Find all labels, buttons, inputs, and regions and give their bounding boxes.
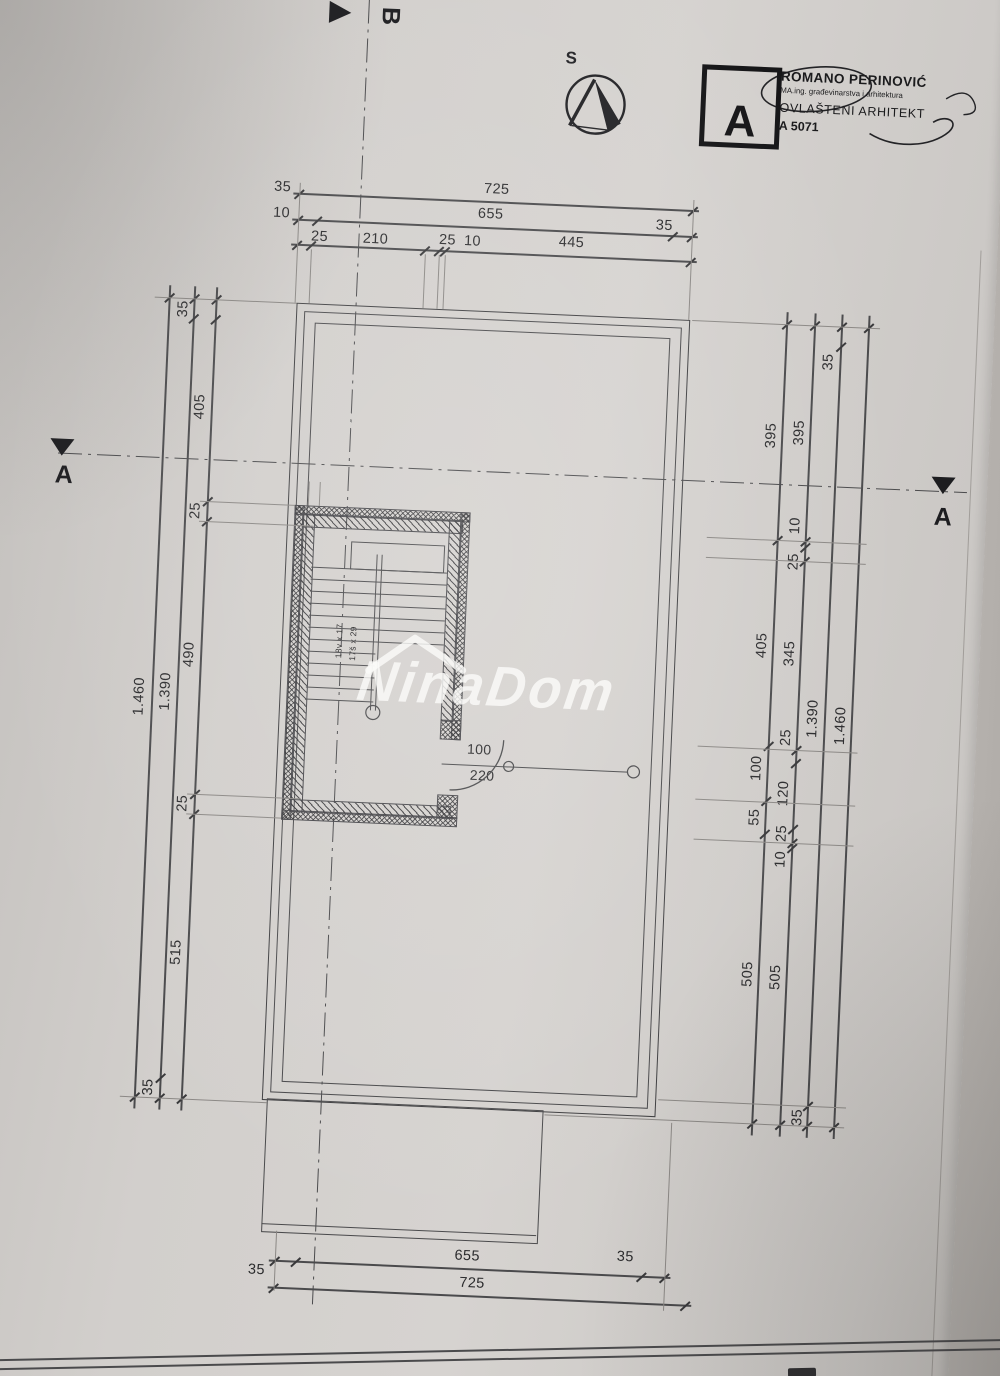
drawing-line [309,614,377,618]
dim-label: 515 [168,939,185,965]
drawing-line [377,617,445,621]
dim-label: 10 [787,517,804,535]
drawing-line [307,481,309,505]
dim-label: 55 [746,808,763,826]
dim-label: 1.460 [130,677,148,716]
dim-label: 10 [464,233,482,250]
drawing-line [442,763,628,772]
drawing-line [707,536,867,544]
drawing-line [186,813,281,818]
dim-label: 505 [739,961,756,987]
dim-label: 35 [140,1078,157,1096]
drawing-line [187,793,301,799]
dim-label: 395 [791,420,808,446]
dim-label: 10 [273,205,291,222]
dim-label: 35 [616,1249,634,1266]
dim-label: 655 [478,206,504,223]
drawing-line [378,593,446,597]
dim-label: 490 [181,641,198,667]
dim-label: 25 [311,228,329,245]
drawing-line [308,249,311,303]
scanned-floor-plan-photo: A A B 18v x 17 17š x 29 100 220 [0,0,1000,1376]
dim-label: 1.390 [157,672,175,711]
dim-label: 35 [789,1109,806,1127]
drawing-line [310,590,378,594]
dim-label: 25 [785,553,802,571]
dim-label: 395 [763,423,780,449]
dim-label: 25 [174,794,191,812]
drawing-line [311,578,379,582]
dim-label: 1.460 [832,706,850,745]
dim-label: 25 [439,232,457,249]
floor-plan-drawing: A A B 18v x 17 17š x 29 100 220 [0,0,1000,1376]
dim-label: 1.390 [804,699,822,738]
dim-label: 25 [187,502,204,520]
dim-label: 35 [248,1262,266,1279]
dim-label: 725 [459,1275,485,1292]
drawing-line [318,482,320,506]
drawing-line [200,500,295,505]
dim-label: 100 [748,755,765,781]
dim-label: 655 [454,1248,480,1265]
dim-label: 405 [754,632,771,658]
dim-label: 25 [778,729,795,747]
dim-line [291,244,697,263]
title-block-smudge [788,1368,816,1376]
drawing-line [698,745,858,753]
dim-label: 505 [767,964,784,990]
dim-label: 35 [175,300,192,318]
dim-label: 25 [774,825,791,843]
dim-label: 10 [772,851,789,869]
dim-label: 445 [558,234,584,251]
drawing-line [379,569,447,573]
dim-label: 725 [484,181,510,198]
drawing-line [199,520,313,526]
drawing-line [261,1223,536,1236]
watermark-text: NinaDom [353,648,620,724]
drawing-line [377,605,445,609]
drawing-line [311,566,379,570]
dim-label: 345 [781,641,798,667]
dim-label: 35 [820,353,837,371]
drawing-line [310,602,378,606]
dim-label: 405 [191,394,208,420]
drawing-line [663,1123,672,1311]
dim-label: 35 [274,179,292,196]
watermark: NinaDom [348,624,672,748]
drawing-line [379,581,447,585]
drawing-line [436,255,439,309]
drawing-line [120,1095,267,1102]
dim-label: 210 [362,231,388,248]
drawing-line [442,255,445,309]
drawing-line [422,254,425,308]
dim-label: 35 [656,217,674,234]
